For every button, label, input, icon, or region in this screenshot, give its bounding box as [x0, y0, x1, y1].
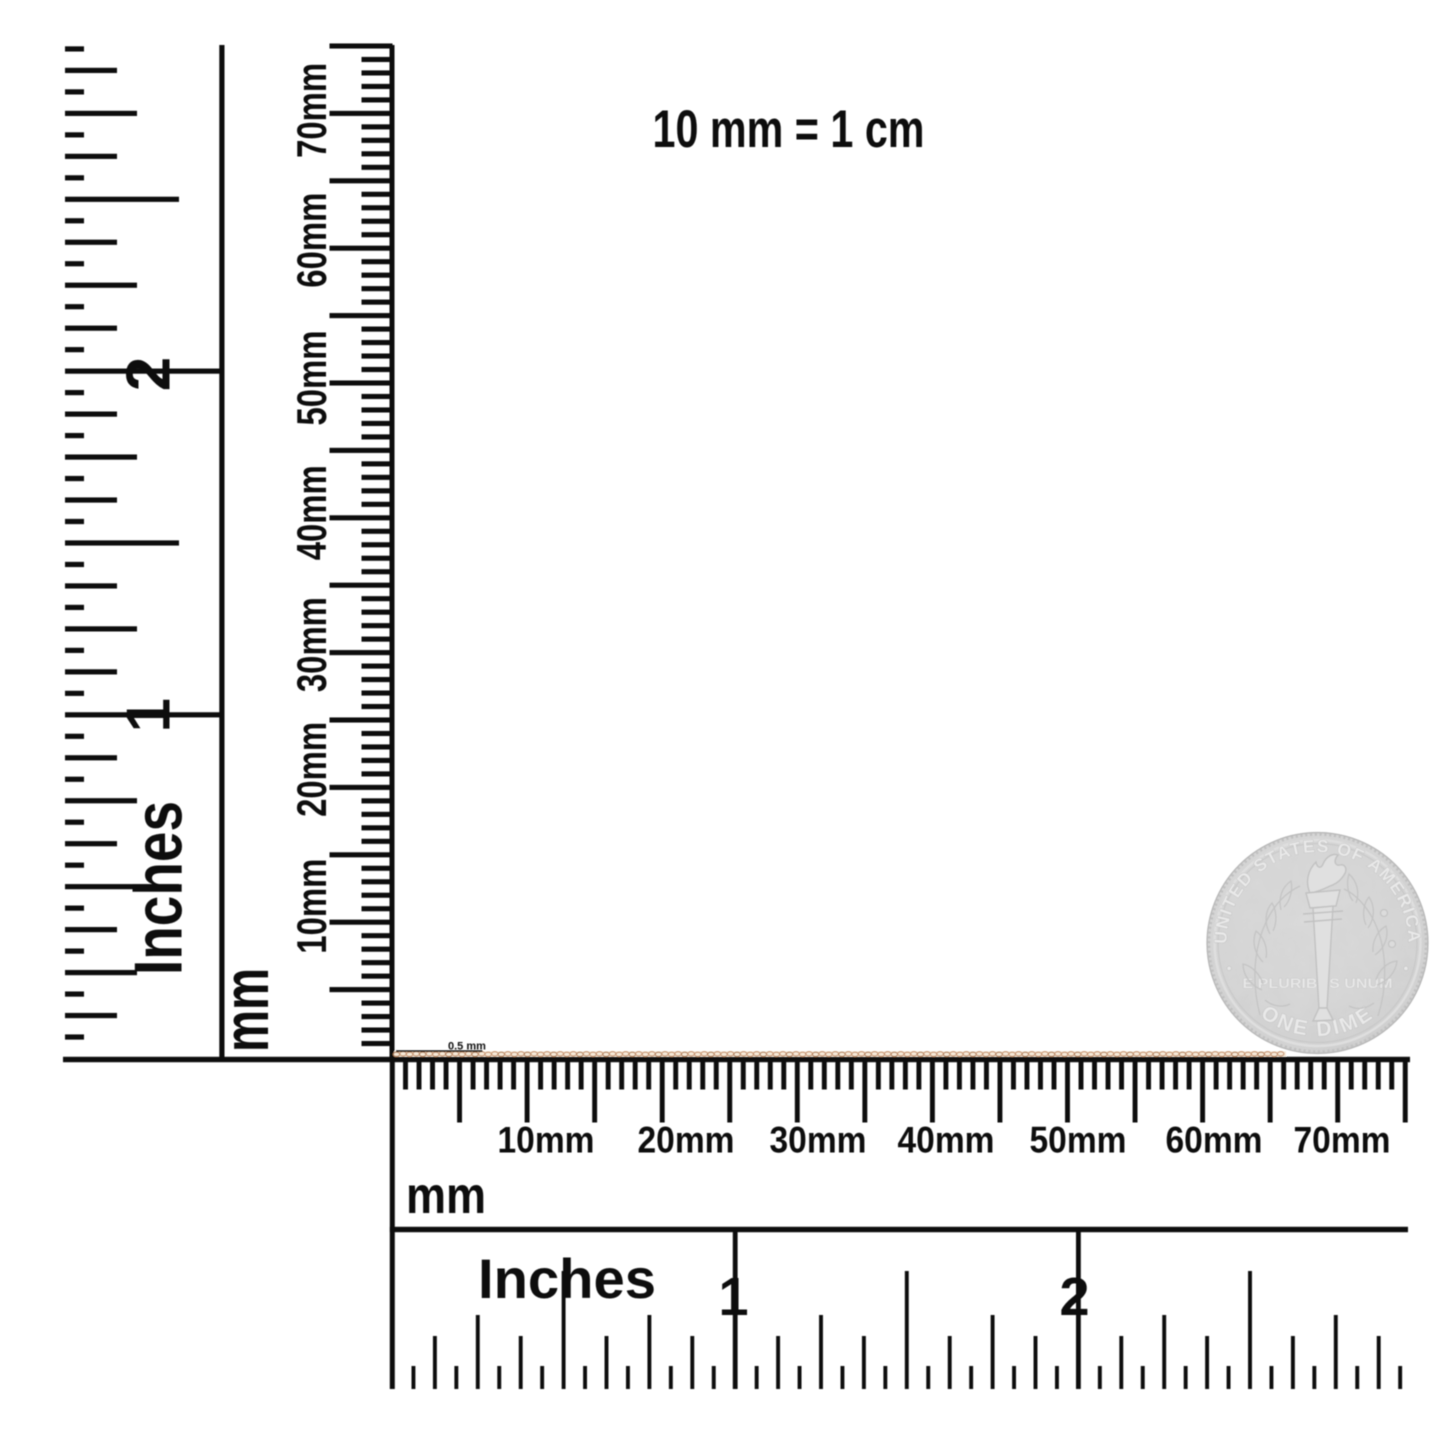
svg-text:Inches: Inches [478, 1247, 656, 1310]
svg-text:70mm: 70mm [1294, 1120, 1391, 1161]
svg-text:20mm: 20mm [638, 1120, 735, 1161]
svg-text:2: 2 [1059, 1267, 1089, 1327]
svg-text:30mm: 30mm [288, 597, 335, 692]
svg-text:1: 1 [718, 1267, 748, 1327]
svg-text:mm: mm [406, 1167, 486, 1225]
svg-text:20mm: 20mm [288, 722, 335, 817]
svg-text:40mm: 40mm [898, 1120, 995, 1161]
svg-text:50mm: 50mm [288, 331, 335, 426]
svg-text:30mm: 30mm [770, 1120, 867, 1161]
svg-text:10mm: 10mm [498, 1120, 595, 1161]
svg-text:2: 2 [115, 357, 184, 391]
svg-text:60mm: 60mm [288, 193, 335, 288]
svg-text:1: 1 [115, 698, 184, 732]
svg-text:50mm: 50mm [1030, 1120, 1127, 1161]
svg-text:60mm: 60mm [1166, 1120, 1263, 1161]
svg-text:10 mm = 1 cm: 10 mm = 1 cm [653, 100, 925, 159]
svg-text:10mm: 10mm [288, 859, 335, 954]
svg-text:mm: mm [210, 968, 282, 1052]
svg-text:Inches: Inches [120, 801, 196, 975]
svg-text:40mm: 40mm [288, 465, 335, 560]
svg-text:70mm: 70mm [288, 63, 335, 158]
